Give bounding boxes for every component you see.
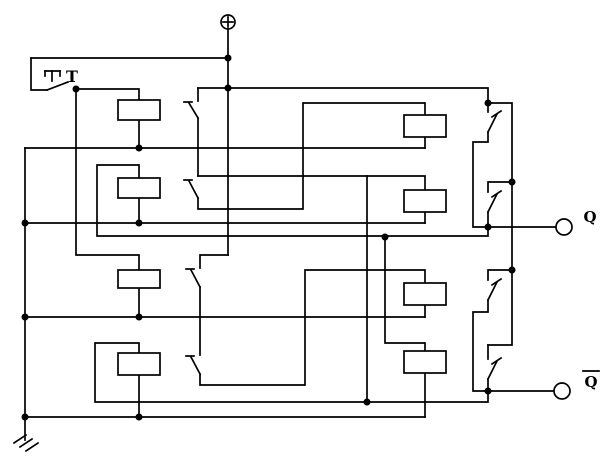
t-label: T: [66, 67, 78, 86]
contact-l1-out: [473, 300, 488, 391]
chain1-out-to-r1a-top: [198, 103, 425, 209]
tap-to-r1b-top: [198, 176, 425, 190]
r2a-box: [404, 283, 446, 305]
junction-dot-0: [225, 55, 232, 62]
junction-dot-12: [485, 100, 492, 107]
contact-d-blade: [191, 357, 200, 374]
t-switch-blade: [47, 82, 68, 90]
flip-flop-schematic: TQQ: [0, 0, 612, 471]
coil3-box: [118, 270, 160, 288]
chain2-out-to-r2a-top: [200, 270, 425, 385]
power-to-chain2: [200, 255, 228, 268]
ground-icon-stroke-1: [20, 439, 32, 447]
junction-dot-16: [485, 388, 492, 395]
junction-dot-1: [225, 85, 232, 92]
t-node-to-coil1-top: [76, 89, 139, 100]
qbar-label: Q: [584, 373, 597, 391]
q-terminal: [556, 219, 572, 235]
junction-dot-5: [136, 220, 143, 227]
junction-dot-15: [485, 224, 492, 231]
r1a-box: [404, 115, 446, 137]
r1b-box: [404, 190, 446, 212]
junction-dot-7: [136, 314, 143, 321]
junction-dot-3: [136, 145, 143, 152]
contact-u1-out: [473, 132, 488, 227]
junction-dot-10: [382, 234, 389, 241]
chain1-feed: [198, 88, 488, 103]
junction-dot-6: [22, 314, 29, 321]
right-rail: [488, 103, 512, 345]
coil4-box: [118, 353, 160, 375]
coil1-box: [118, 100, 160, 120]
junction-dot-2: [73, 86, 80, 93]
coil2-box: [118, 178, 160, 198]
junction-dot-14: [509, 267, 516, 274]
junction-dot-8: [22, 414, 29, 421]
contact-b-blade: [189, 181, 198, 198]
junction-dot-4: [22, 220, 29, 227]
junction-dot-11: [364, 399, 371, 406]
q-label: Q: [583, 208, 596, 226]
ground-icon-stroke-2: [26, 443, 38, 451]
circuit-diagram: TQQ: [0, 0, 612, 471]
contact-l1-in: [488, 270, 512, 280]
r2b-box: [404, 351, 446, 373]
contact-c-blade: [191, 270, 200, 287]
junction-dot-9: [136, 414, 143, 421]
contact-a-blade: [189, 103, 198, 118]
junction-dot-13: [509, 179, 516, 186]
qbar-terminal: [554, 383, 570, 399]
contact-u2-in: [488, 182, 512, 192]
